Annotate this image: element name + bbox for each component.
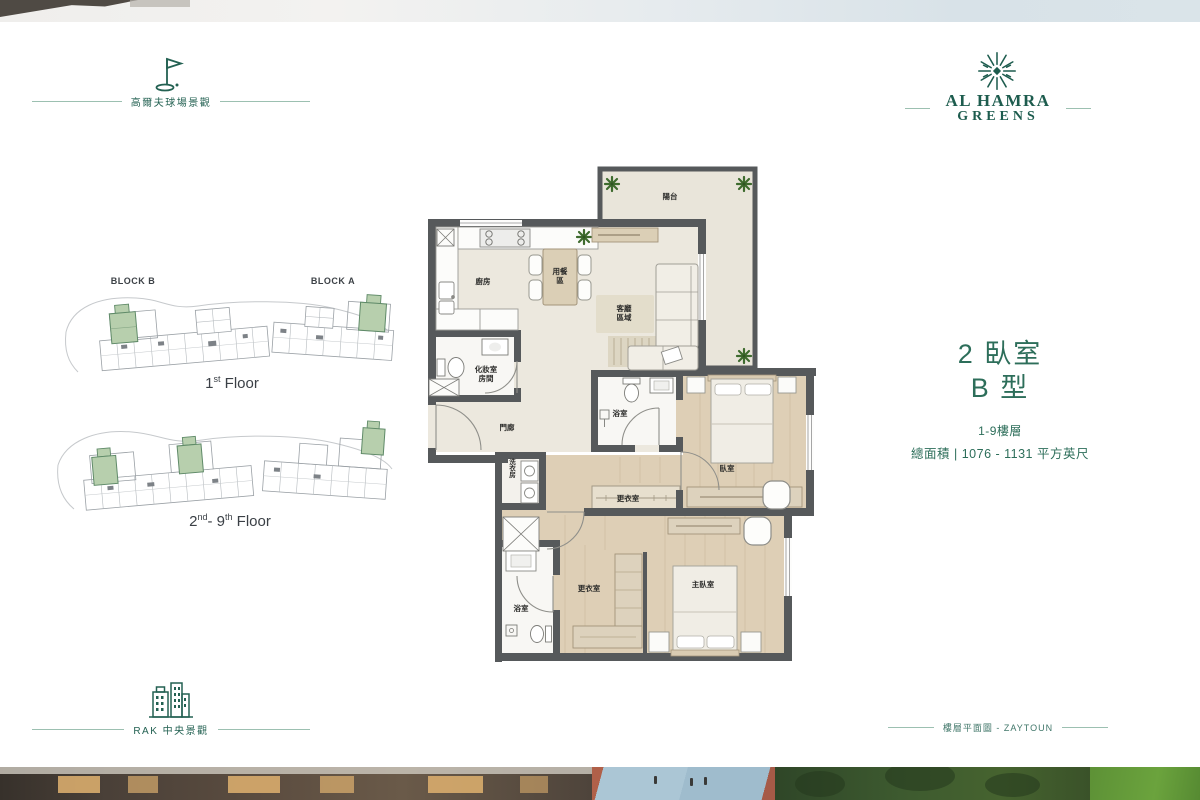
unit-title-type: B 型 — [870, 372, 1130, 406]
kitchen-sink — [439, 282, 454, 314]
building-silhouette — [130, 0, 190, 7]
room-label-bathroom1: 浴室 — [613, 408, 628, 418]
block-a-buildings — [262, 414, 390, 499]
building-photo-segment — [0, 767, 592, 800]
footer-note-row: 樓層平面圖 - ZAYTOUN — [888, 721, 1108, 734]
room-label-living-2: 區域 — [617, 312, 632, 322]
plant-icon — [737, 177, 751, 191]
plant-icon — [577, 230, 591, 244]
ordinal-suffix: th — [225, 512, 233, 522]
divider-line — [888, 727, 934, 728]
ordinal-suffix: nd — [197, 512, 207, 522]
unit-title-bedrooms: 2 臥室 — [870, 338, 1130, 372]
room-label-terrace: 陽台 — [663, 191, 678, 201]
walkway-photo-segment — [592, 767, 775, 800]
rooftop-silhouette — [0, 0, 138, 17]
top-feature-label: 高爾夫球場景觀 — [131, 94, 212, 109]
divider-line — [1066, 108, 1091, 109]
room-label-kitchen: 廚房 — [476, 276, 491, 286]
highlighted-unit — [92, 455, 118, 485]
bed — [708, 375, 776, 463]
nightstand — [778, 377, 796, 393]
room-label-closet2: 更衣室 — [578, 583, 601, 593]
block-b-buildings — [81, 432, 254, 510]
unit-floors: 1-9樓層 — [870, 422, 1130, 439]
powder-sink — [482, 339, 508, 355]
floor-word: Floor — [233, 513, 271, 530]
room-label-powder-2: 房間 — [479, 373, 494, 383]
room-label-master: 主臥室 — [692, 579, 715, 589]
block-a-label: BLOCK A — [311, 276, 355, 286]
divider-line — [32, 729, 124, 730]
ordinal-suffix: st — [213, 374, 220, 384]
room-label-powder-1: 化妝室 — [475, 364, 498, 374]
shaft-box — [429, 379, 459, 396]
unit-area: 總面積 | 1076 - 1131 平方英尺 — [870, 443, 1130, 462]
room-label-closet1: 更衣室 — [617, 493, 640, 503]
top-photo-strip — [0, 0, 1200, 22]
divider-line — [32, 101, 122, 102]
plant-icon — [737, 349, 751, 363]
nightstand — [649, 632, 669, 652]
floor-range: - 9 — [207, 513, 225, 530]
lawn-photo-segment — [1090, 767, 1200, 800]
block-b-label: BLOCK B — [111, 276, 156, 286]
keyplan2-caption: 2nd- 9th Floor — [130, 512, 330, 530]
floor-word: Floor — [221, 375, 259, 392]
room-label-bedroom: 臥室 — [720, 463, 735, 473]
bedroom-door-gap — [676, 400, 683, 437]
highlighted-unit — [359, 302, 387, 332]
highlighted-unit — [177, 444, 203, 474]
block-a-buildings — [272, 288, 396, 360]
bottom-feature: RAK 中央景觀 — [32, 722, 310, 737]
highlighted-unit — [361, 428, 385, 455]
top-feature: 高爾夫球場景觀 — [32, 94, 310, 109]
room-label-living-1: 客廳 — [616, 303, 632, 313]
bottom-photo-strip — [0, 767, 1200, 800]
divider-line — [218, 729, 310, 730]
divider-line — [220, 101, 310, 102]
unit-info: 2 臥室 B 型 1-9樓層 總面積 | 1076 - 1131 平方英尺 — [870, 338, 1130, 462]
room-label-bathroom2: 浴室 — [514, 603, 529, 613]
bottom-feature-label: RAK 中央景觀 — [133, 722, 208, 737]
brochure-page: 高爾夫球場景觀 AL HAMRA GREENS 2 臥室 B 型 1-9樓層 總… — [0, 0, 1200, 800]
entry-door-gap — [428, 405, 436, 450]
nightstand — [687, 377, 705, 393]
keyplan1-caption: 1st Floor — [142, 374, 322, 392]
room-label-dining-2: 區 — [556, 276, 564, 285]
brand-name-line1: AL HAMRA — [945, 92, 1050, 110]
block-b-buildings — [97, 292, 270, 370]
powder-toilet — [437, 358, 464, 378]
footer-note: 樓層平面圖 - ZAYTOUN — [943, 721, 1053, 734]
buildings-icon — [147, 680, 195, 722]
trees-photo-segment — [775, 767, 1090, 800]
brand-name-line2: GREENS — [957, 110, 1039, 125]
shaft-box — [503, 517, 539, 551]
room-label-dining-1: 用餐 — [553, 266, 568, 276]
armchair — [763, 481, 790, 509]
brand-lockup: AL HAMRA GREENS — [905, 92, 1091, 125]
divider-line — [905, 108, 930, 109]
shaft-box — [437, 229, 454, 246]
master-dresser — [668, 518, 740, 534]
plant-icon — [605, 177, 619, 191]
armchair — [744, 517, 771, 545]
floorplan: 陽台 廚房 用餐 區 客廳 區域 化妝室 房間 門廊 浴室 臥室 更衣室 洗衣房… — [418, 152, 828, 672]
stove — [480, 229, 530, 247]
golf-flag-icon — [150, 54, 190, 94]
starburst-logo-icon — [974, 48, 1020, 94]
nightstand — [741, 632, 761, 652]
divider-line — [1062, 727, 1108, 728]
room-label-entry: 門廊 — [500, 422, 515, 432]
